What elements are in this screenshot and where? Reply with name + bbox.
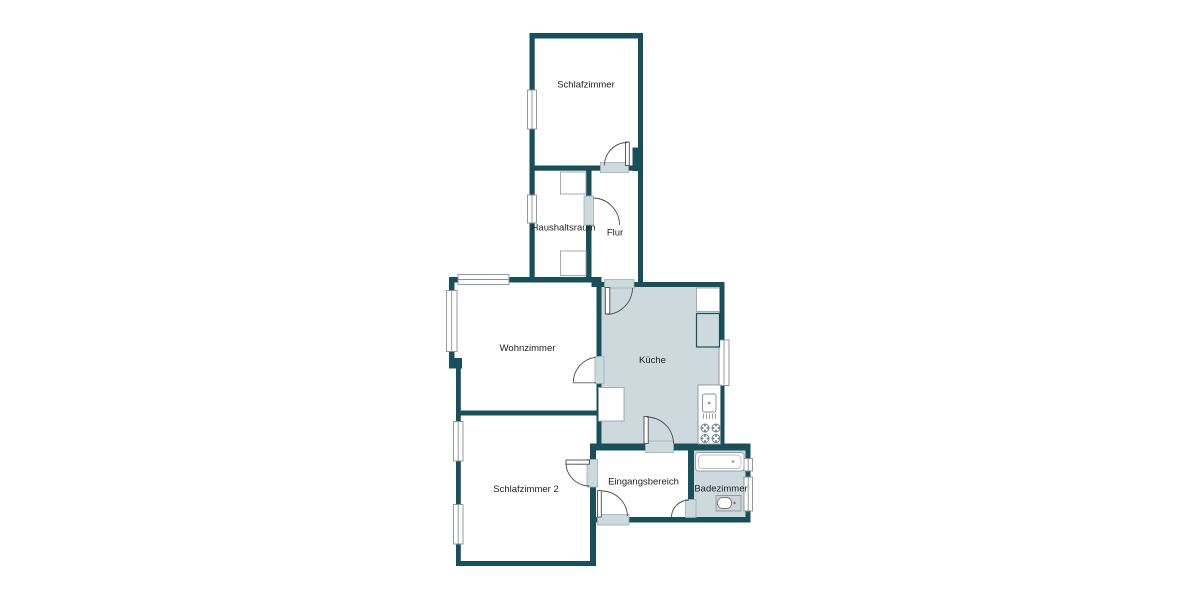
svg-text:Schlafzimmer: Schlafzimmer (557, 80, 615, 91)
svg-text:Eingangsbereich: Eingangsbereich (608, 477, 679, 488)
svg-text:Wohnzimmer: Wohnzimmer (500, 343, 556, 354)
svg-text:Flur: Flur (607, 228, 623, 239)
svg-text:Schlafzimmer 2: Schlafzimmer 2 (493, 484, 558, 495)
svg-text:Haushaltsraum: Haushaltsraum (532, 223, 596, 234)
svg-text:Badezimmer: Badezimmer (694, 484, 747, 495)
svg-text:Küche: Küche (639, 355, 666, 366)
